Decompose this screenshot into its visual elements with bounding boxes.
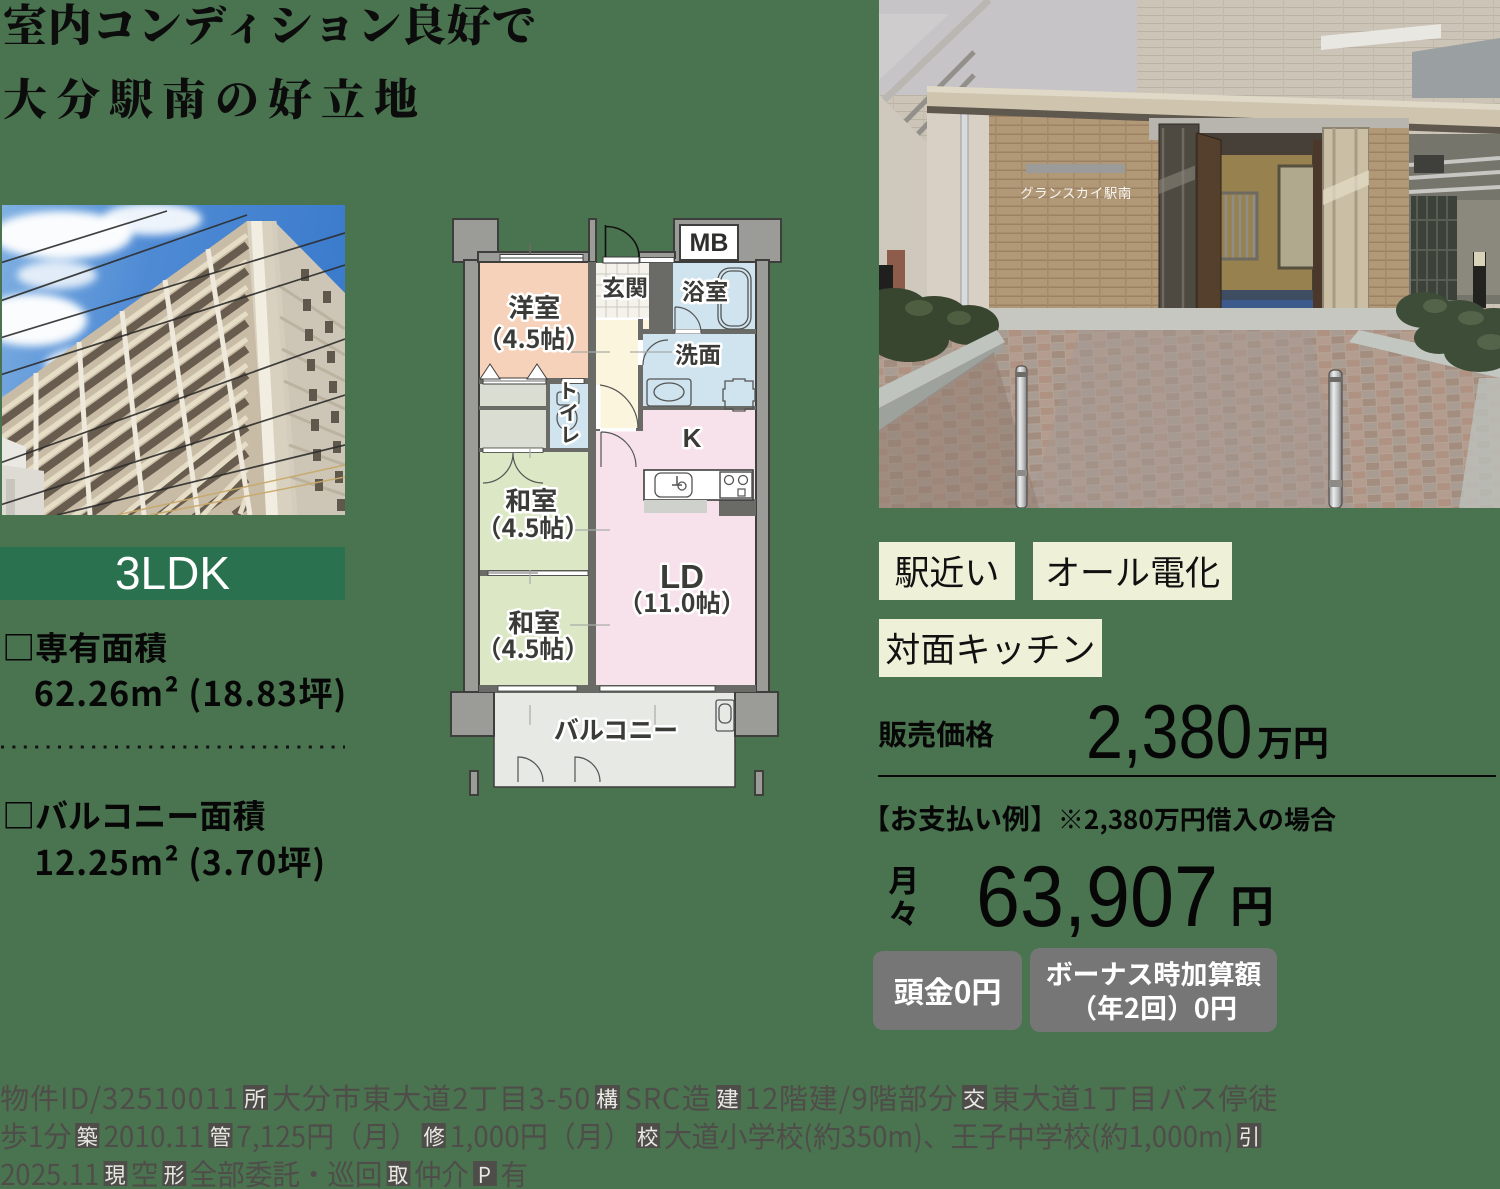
svg-text:（4.5帖）: （4.5帖） [477,509,590,545]
svg-text:玄関: 玄関 [602,269,648,303]
svg-text:（4.5帖）: （4.5帖） [477,630,590,666]
svg-text:グランスカイ駅南: グランスカイ駅南 [1020,182,1132,202]
svg-text:レ: レ [560,419,580,448]
svg-text:（4.5帖）: （4.5帖） [478,320,591,356]
svg-text:（11.0帖）: （11.0帖） [618,584,745,620]
svg-text:K: K [683,423,702,453]
svg-text:MB: MB [690,229,729,257]
svg-text:洗面: 洗面 [675,336,721,370]
svg-text:バルコニー: バルコニー [554,711,679,747]
svg-text:浴室: 浴室 [682,273,728,307]
